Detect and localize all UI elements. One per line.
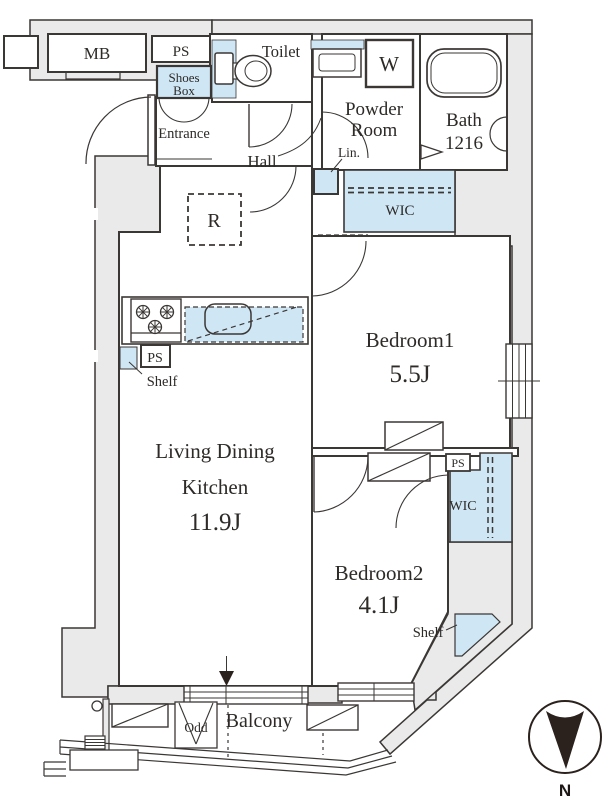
wall-joint-notch: [92, 350, 98, 362]
label-entrance: Entrance: [158, 126, 210, 142]
wall-joint-notch: [92, 208, 98, 220]
label-wic-bedroom2: WIC: [449, 499, 476, 514]
label-bedroom1-name: Bedroom1: [366, 328, 455, 352]
balcony-hatch-ticks: [44, 762, 66, 776]
label-refrigerator: R: [207, 210, 221, 232]
wall-pier-between-windows: [305, 686, 342, 703]
label-balcony: Balcony: [226, 710, 293, 732]
label-washer: W: [379, 52, 399, 76]
balcony-ac-unit-right: [307, 705, 358, 755]
balcony-ac-unit-left: [112, 704, 168, 727]
label-linen: Lin.: [338, 145, 360, 160]
label-bath-line1: Bath: [446, 110, 482, 131]
label-ps-bedroom: PS: [451, 456, 464, 470]
label-powder-line2: Room: [351, 120, 398, 141]
label-ldk-line2: Kitchen: [182, 475, 249, 499]
label-ldk-size: 11.9J: [189, 509, 242, 536]
label-bedroom2-size: 4.1J: [359, 592, 400, 619]
kitchen-counter-blue: [185, 307, 303, 342]
bedroom1-ac-unit: [385, 422, 443, 450]
label-shoes-line2: Box: [173, 83, 195, 98]
wall-top-band: [212, 20, 532, 34]
label-ps-kitchen: PS: [147, 351, 163, 366]
label-bath-line2: 1216: [445, 133, 483, 154]
left-edge-box: [4, 36, 38, 68]
label-hall: Hall: [247, 152, 277, 171]
bedroom2-ac-unit: [368, 453, 430, 481]
ldk-balcony-window: [184, 686, 308, 704]
label-wic-hall: WIC: [385, 203, 414, 219]
label-shelf-bedroom2: Shelf: [413, 625, 444, 641]
wall-pier-left-of-ldk-window: [108, 686, 188, 704]
bedroom2-balcony-window: [338, 683, 414, 701]
balcony-coil-symbol: [85, 736, 105, 749]
balcony-details: [44, 699, 396, 776]
entrance-door-leaf: [148, 95, 155, 165]
label-bedroom1-size: 5.5J: [390, 361, 431, 388]
label-ps-meter: PS: [173, 44, 190, 60]
label-mb: MB: [84, 44, 110, 63]
label-powder-line1: Powder: [345, 99, 404, 120]
label-ldk-line1: Living Dining: [155, 439, 275, 463]
compass-north-label: N: [559, 781, 571, 800]
linen-closet: [314, 169, 338, 194]
kitchen-shelf: [120, 347, 137, 369]
balcony-step-block: [70, 750, 138, 770]
wic-hall-closet: [344, 170, 455, 232]
label-odd: Odd: [184, 720, 207, 735]
washbasin-counter: [311, 40, 364, 49]
entrance-door-arc: [86, 97, 151, 164]
compass: N: [529, 701, 601, 800]
washbasin-icon: [313, 49, 361, 77]
stove-icon: [131, 299, 181, 342]
label-toilet: Toilet: [262, 42, 301, 61]
label-bedroom2-name: Bedroom2: [335, 561, 424, 585]
rooms: [4, 34, 518, 686]
bathtub-icon: [427, 49, 501, 97]
label-shelf-kitchen: Shelf: [147, 374, 178, 390]
floor-plan: N MB PS Toilet Shoes Box Entrance Hall P…: [0, 0, 608, 800]
balcony-drain-circle: [92, 701, 102, 711]
